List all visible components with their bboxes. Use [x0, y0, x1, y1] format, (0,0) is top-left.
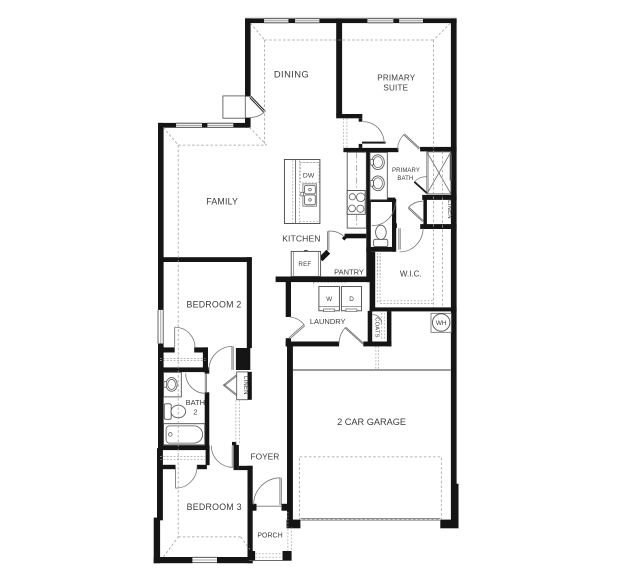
svg-text:BEDROOM 2: BEDROOM 2: [186, 299, 241, 309]
svg-text:SUITE: SUITE: [383, 84, 408, 93]
svg-text:DW: DW: [303, 172, 315, 179]
svg-text:2 CAR GARAGE: 2 CAR GARAGE: [337, 417, 406, 427]
svg-text:KITCHEN: KITCHEN: [282, 234, 320, 244]
svg-text:PRIMARY: PRIMARY: [377, 73, 416, 82]
svg-text:DINING: DINING: [274, 68, 309, 79]
svg-text:W: W: [326, 296, 333, 303]
svg-text:PRIMARY: PRIMARY: [392, 168, 420, 174]
svg-text:W.I.C.: W.I.C.: [400, 269, 422, 278]
svg-text:PORCH: PORCH: [257, 533, 282, 540]
svg-text:D: D: [349, 296, 354, 303]
svg-text:BATH: BATH: [397, 176, 413, 182]
svg-text:LINEN: LINEN: [242, 376, 248, 395]
svg-text:LAUNDRY: LAUNDRY: [310, 317, 346, 326]
svg-text:BEDROOM 3: BEDROOM 3: [187, 502, 242, 512]
svg-text:2: 2: [193, 408, 197, 417]
svg-text:REF: REF: [298, 261, 311, 268]
svg-text:COATS: COATS: [374, 317, 380, 338]
svg-text:LINEN: LINEN: [446, 200, 452, 219]
svg-text:FAMILY: FAMILY: [206, 196, 238, 206]
svg-text:WH: WH: [436, 320, 447, 327]
svg-text:PANTRY: PANTRY: [334, 268, 364, 277]
svg-text:FOYER: FOYER: [250, 452, 279, 462]
svg-text:BATH: BATH: [186, 398, 205, 407]
